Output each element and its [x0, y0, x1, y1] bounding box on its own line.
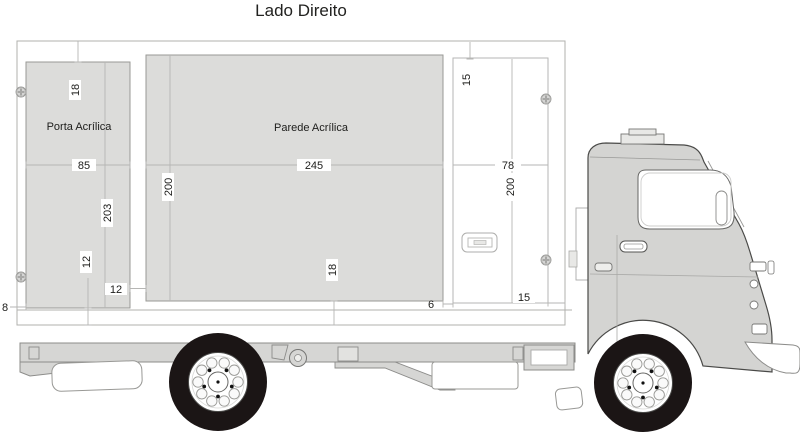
svg-text:18: 18 — [70, 84, 82, 96]
truck-chassis — [20, 343, 575, 392]
screw-icon — [16, 87, 26, 97]
svg-text:245: 245 — [305, 160, 323, 172]
window-vent-divider — [716, 191, 727, 225]
door-lock-plate — [595, 263, 612, 271]
svg-text:78: 78 — [502, 160, 514, 172]
rear-mudflap — [52, 360, 143, 391]
recessed-door-handle-icon — [462, 233, 497, 252]
page-title: Lado Direito — [255, 1, 347, 20]
svg-text:12: 12 — [81, 256, 93, 268]
rear-wheel — [169, 333, 267, 431]
dim-porta-top-offset: 18 — [69, 80, 82, 100]
front-indicator-light — [750, 280, 758, 288]
screw-icon — [541, 94, 551, 104]
front-mudflap — [555, 386, 583, 410]
door-area-outline — [453, 58, 548, 303]
dim-porta-width: 85 — [72, 159, 96, 172]
svg-text:200: 200 — [505, 178, 517, 196]
dim-door-area-height: 200 — [504, 173, 517, 201]
technical-drawing-page: Lado Direito Porta Acrílica Parede Acríl… — [0, 0, 800, 432]
svg-text:18: 18 — [327, 264, 339, 276]
svg-text:85: 85 — [78, 160, 90, 172]
dim-porta-height: 203 — [101, 199, 114, 227]
dim-parede-bottom-offset: 18 — [326, 259, 339, 281]
side-marker-light — [750, 262, 766, 271]
dim-parede-width: 245 — [297, 159, 331, 172]
truck-side-diagram: Lado Direito Porta Acrílica Parede Acríl… — [0, 0, 800, 432]
parede-acrilica-panel — [146, 55, 443, 301]
dim-porta-bottom-offset: 12 — [80, 251, 93, 273]
dim-left-edge-gap: 8 — [2, 302, 8, 314]
cab-rear-bracket — [576, 208, 589, 280]
svg-text:203: 203 — [102, 204, 114, 222]
dim-parede-door-gap: 6 — [428, 299, 434, 311]
front-indicator-light — [750, 301, 758, 309]
screw-icon — [541, 255, 551, 265]
svg-text:6: 6 — [428, 299, 434, 311]
svg-text:200: 200 — [163, 178, 175, 196]
dim-door-top-offset: 15 — [460, 70, 473, 90]
front-wheel — [594, 334, 692, 432]
porta-acrilica-label: Porta Acrílica — [47, 121, 113, 133]
parede-acrilica-label: Parede Acrílica — [274, 122, 349, 134]
svg-text:15: 15 — [518, 292, 530, 304]
svg-text:8: 8 — [2, 302, 8, 314]
front-reflector — [752, 324, 767, 334]
dim-parede-height: 200 — [162, 173, 175, 201]
dim-porta-parede-gap: 12 — [105, 283, 127, 296]
svg-text:15: 15 — [461, 74, 473, 86]
roof-vent-icon — [621, 134, 664, 144]
svg-text:12: 12 — [110, 284, 122, 296]
dim-door-area-width: 78 — [495, 159, 521, 172]
dim-right-edge-gap: 15 — [513, 292, 535, 304]
screw-icon — [16, 272, 26, 282]
fuel-tank — [432, 362, 518, 389]
